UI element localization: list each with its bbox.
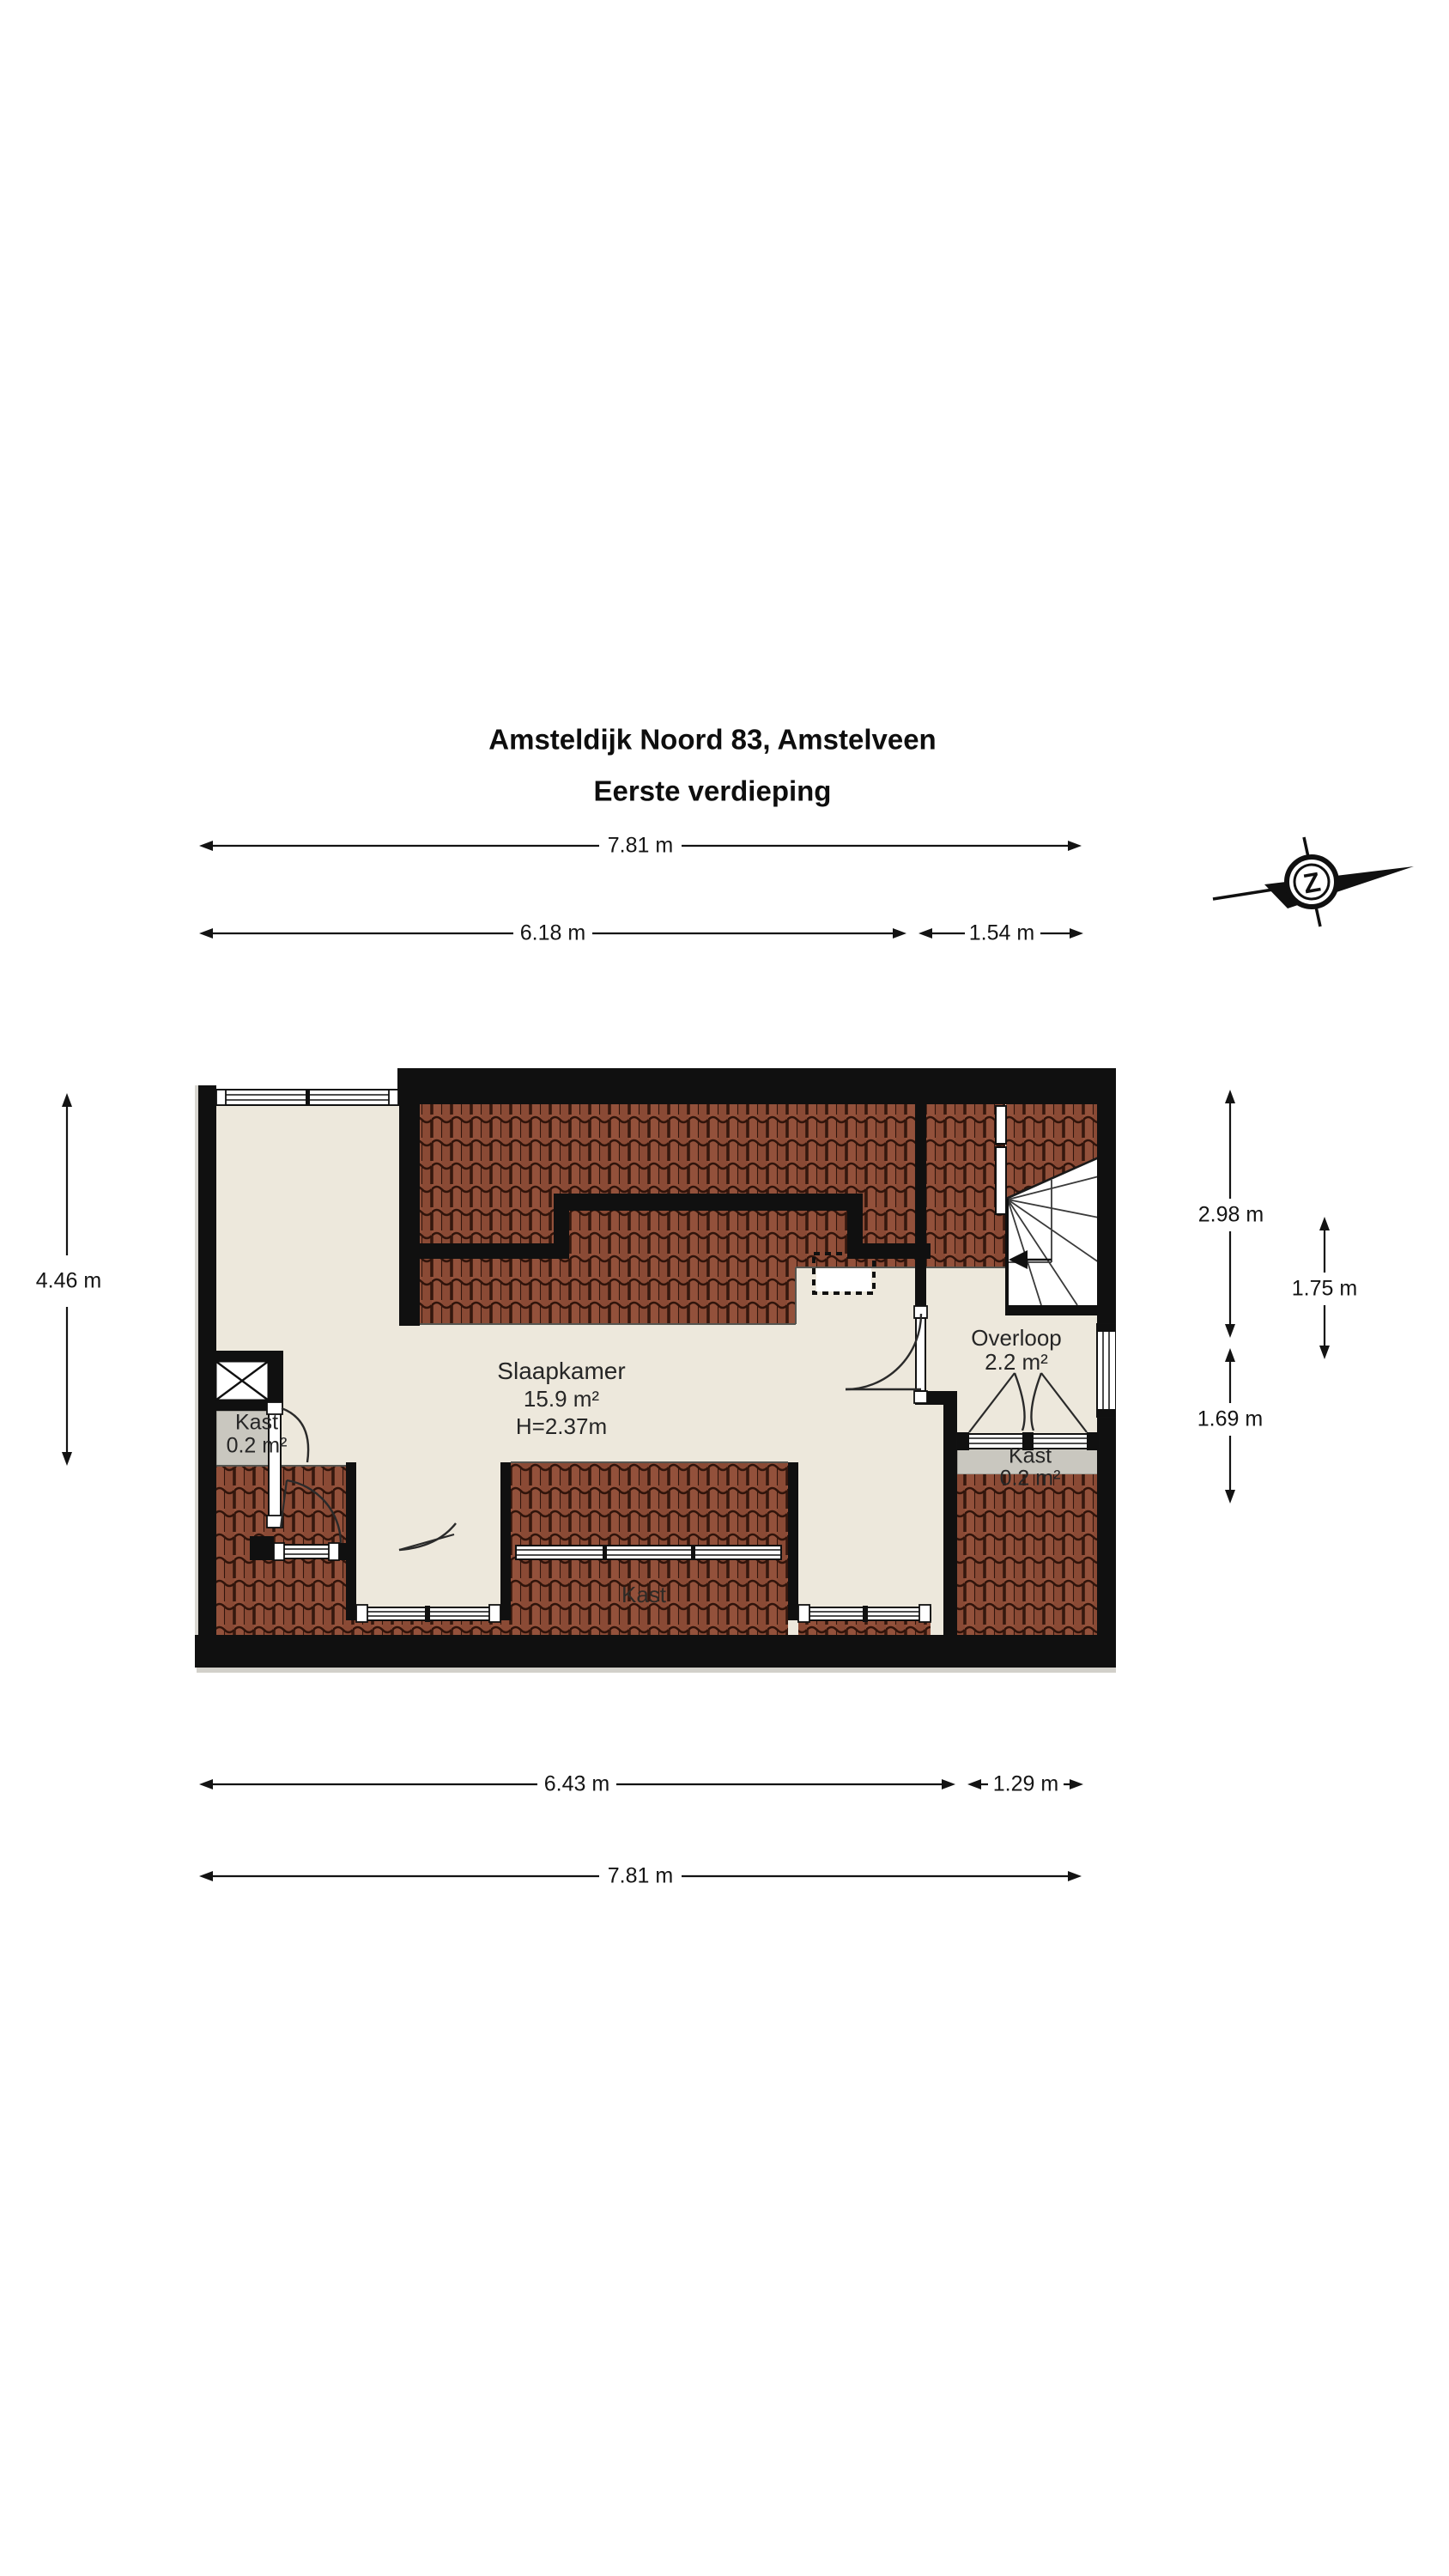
skylight-strip bbox=[996, 1106, 1006, 1214]
window-top-left bbox=[216, 1090, 398, 1105]
window-left-pocket bbox=[356, 1605, 500, 1622]
wall-shadow-bottom bbox=[197, 1668, 1116, 1673]
dim-label-top-left: 6.18 m bbox=[520, 923, 585, 945]
dim-label-right-lower: 1.69 m bbox=[1197, 1409, 1263, 1431]
wall-shadow-left bbox=[195, 1085, 198, 1635]
closet-sliding-band bbox=[516, 1546, 781, 1559]
room-height-slaapkamer: H=2.37m bbox=[516, 1415, 607, 1437]
room-area-slaapkamer: 15.9 m² bbox=[524, 1388, 599, 1410]
window-bottom-left-band bbox=[274, 1543, 339, 1560]
compass-icon: Z bbox=[1193, 811, 1434, 949]
room-label-kast-bottom: Kast bbox=[621, 1583, 666, 1606]
dim-label-top-right: 1.54 m bbox=[969, 923, 1034, 945]
room-label-slaapkamer: Slaapkamer bbox=[497, 1359, 625, 1383]
room-label-overloop: Overloop bbox=[971, 1327, 1062, 1349]
room-label-kast-right: Kast bbox=[1009, 1446, 1052, 1467]
dim-label-right-upper: 2.98 m bbox=[1198, 1205, 1264, 1226]
dim-label-bottom-full: 7.81 m bbox=[608, 1866, 673, 1887]
dim-label-right-middle: 1.75 m bbox=[1292, 1279, 1357, 1300]
dim-label-top-full: 7.81 m bbox=[608, 835, 673, 857]
shaft-symbol bbox=[215, 1361, 269, 1400]
room-area-kast-right: 0.2 m² bbox=[1000, 1468, 1061, 1490]
window-right-pocket bbox=[798, 1605, 931, 1622]
room-area-kast-left: 0.2 m² bbox=[227, 1436, 288, 1457]
dim-label-bottom-left: 6.43 m bbox=[544, 1774, 609, 1795]
room-label-kast-left: Kast bbox=[235, 1413, 278, 1434]
dim-label-left-height: 4.46 m bbox=[36, 1271, 101, 1292]
floorplan-page: Amsteldijk Noord 83, Amstelveen Eerste v… bbox=[0, 0, 1449, 2576]
dim-label-bottom-right: 1.29 m bbox=[993, 1774, 1058, 1795]
window-right bbox=[1097, 1324, 1116, 1417]
room-area-overloop: 2.2 m² bbox=[985, 1351, 1048, 1373]
